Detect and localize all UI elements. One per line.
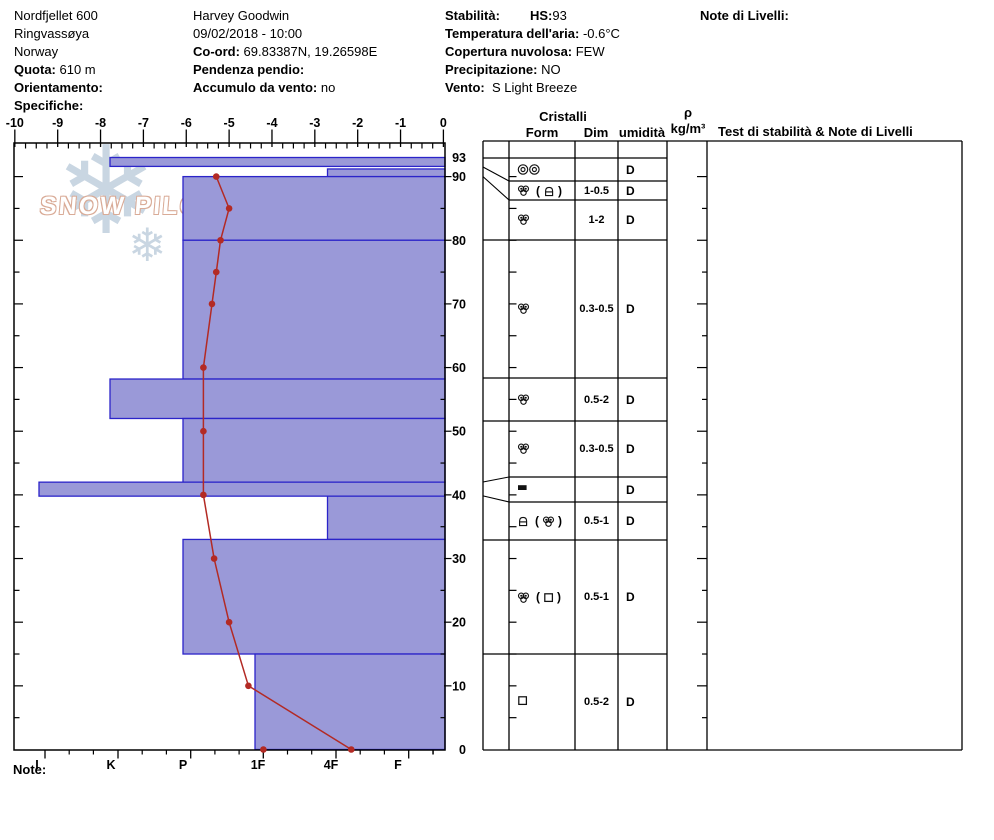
wetness-cell: D [626, 163, 635, 177]
dim-cell: 0.5-2 [575, 696, 618, 708]
temperature-point [213, 269, 220, 276]
snow-profile-report: Nordfjellet 600RingvassøyaNorwayQuota: 6… [0, 0, 994, 840]
grain-cluster-icon [517, 213, 530, 226]
grain-cluster-icon [517, 442, 530, 455]
wetness-cell: D [626, 184, 635, 198]
svg-text:40: 40 [452, 488, 466, 502]
svg-text:-3: -3 [309, 116, 320, 130]
svg-text:-4: -4 [266, 116, 277, 130]
svg-text:-10: -10 [6, 116, 24, 130]
svg-text:0: 0 [459, 743, 466, 757]
table-header-rho-unit: kg/m³ [671, 121, 706, 136]
svg-text:-1: -1 [395, 116, 406, 130]
svg-text:20: 20 [452, 616, 466, 630]
dim-cell: 1-0.5 [575, 185, 618, 197]
temperature-point [209, 301, 216, 308]
form-cell: () [517, 514, 562, 528]
form-cell [517, 695, 528, 706]
temperature-point [348, 746, 355, 753]
svg-text:-6: -6 [181, 116, 192, 130]
temperature-point [200, 364, 207, 371]
snow-layer-bar [183, 539, 445, 654]
svg-text:4F: 4F [324, 758, 339, 772]
temperature-point [211, 555, 218, 562]
form-cell [517, 393, 530, 406]
grain-cluster-icon [542, 515, 555, 528]
svg-text:80: 80 [452, 234, 466, 248]
grain-square-icon [517, 695, 528, 706]
form-cell [517, 442, 530, 455]
temperature-point [200, 492, 207, 499]
svg-text:90: 90 [452, 170, 466, 184]
svg-text:-5: -5 [224, 116, 235, 130]
temperature-point [213, 173, 220, 180]
grain-cluster-icon [517, 591, 530, 604]
svg-text:P: P [179, 758, 187, 772]
wetness-cell: D [626, 302, 635, 316]
svg-text:10: 10 [452, 679, 466, 693]
svg-text:-9: -9 [52, 116, 63, 130]
form-cell [517, 213, 530, 226]
svg-text:0: 0 [440, 116, 447, 130]
svg-text:93: 93 [452, 151, 466, 165]
grain-cluster-icon [517, 302, 530, 315]
snow-layer-bar [183, 240, 445, 379]
svg-text:50: 50 [452, 425, 466, 439]
svg-text:30: 30 [452, 552, 466, 566]
form-cell: () [517, 590, 561, 604]
grain-lock-icon [543, 185, 555, 197]
dim-cell: 0.5-1 [575, 591, 618, 603]
snow-layer-bar [255, 654, 445, 749]
grain-cluster-icon [517, 393, 530, 406]
temperature-point [260, 746, 267, 753]
form-cell: () [517, 184, 562, 198]
svg-text:-8: -8 [95, 116, 106, 130]
snow-layer-bar [328, 496, 446, 539]
wetness-cell: D [626, 442, 635, 456]
svg-text:F: F [394, 758, 402, 772]
temperature-point [217, 237, 224, 244]
svg-text:60: 60 [452, 361, 466, 375]
temperature-point [245, 683, 252, 690]
table-header-umidita: umidità [619, 125, 665, 140]
dim-cell: 0.5-1 [575, 515, 618, 527]
svg-text:1F: 1F [251, 758, 266, 772]
wetness-cell: D [626, 213, 635, 227]
grain-lock-icon [517, 515, 529, 527]
form-cell [517, 483, 528, 492]
snow-layer-bar [110, 157, 445, 166]
svg-text:-7: -7 [138, 116, 149, 130]
note-label: Note: [13, 762, 46, 777]
dim-cell: 0.3-0.5 [575, 303, 618, 315]
temperature-point [226, 619, 233, 626]
temperature-point [200, 428, 207, 435]
dim-cell: 0.3-0.5 [575, 443, 618, 455]
snow-layer-bar [183, 418, 445, 482]
table-header-dim: Dim [584, 125, 609, 140]
grain-cluster-icon [517, 184, 530, 197]
svg-text:K: K [106, 758, 115, 772]
dim-cell: 0.5-2 [575, 394, 618, 406]
form-cell [517, 302, 530, 315]
table-header-rho: ρ [684, 105, 692, 120]
grain-mfcr2-icon [517, 163, 541, 176]
svg-text:-2: -2 [352, 116, 363, 130]
snow-layer-bar [328, 169, 446, 177]
snow-layer-bar [183, 177, 445, 241]
grain-square-icon [543, 592, 554, 603]
dim-cell: 1-2 [575, 214, 618, 226]
table-header-cristalli: Cristalli [539, 109, 587, 124]
form-cell [517, 163, 541, 176]
snow-layer-bar [110, 379, 445, 418]
grain-ice-icon [517, 483, 528, 492]
wetness-cell: D [626, 590, 635, 604]
wetness-cell: D [626, 483, 635, 497]
table-header-form: Form [526, 125, 559, 140]
table-header-test: Test di stabilità & Note di Livelli [718, 124, 913, 139]
svg-text:70: 70 [452, 297, 466, 311]
wetness-cell: D [626, 695, 635, 709]
temperature-point [226, 205, 233, 212]
wetness-cell: D [626, 393, 635, 407]
wetness-cell: D [626, 514, 635, 528]
snow-layer-bar [39, 482, 445, 496]
